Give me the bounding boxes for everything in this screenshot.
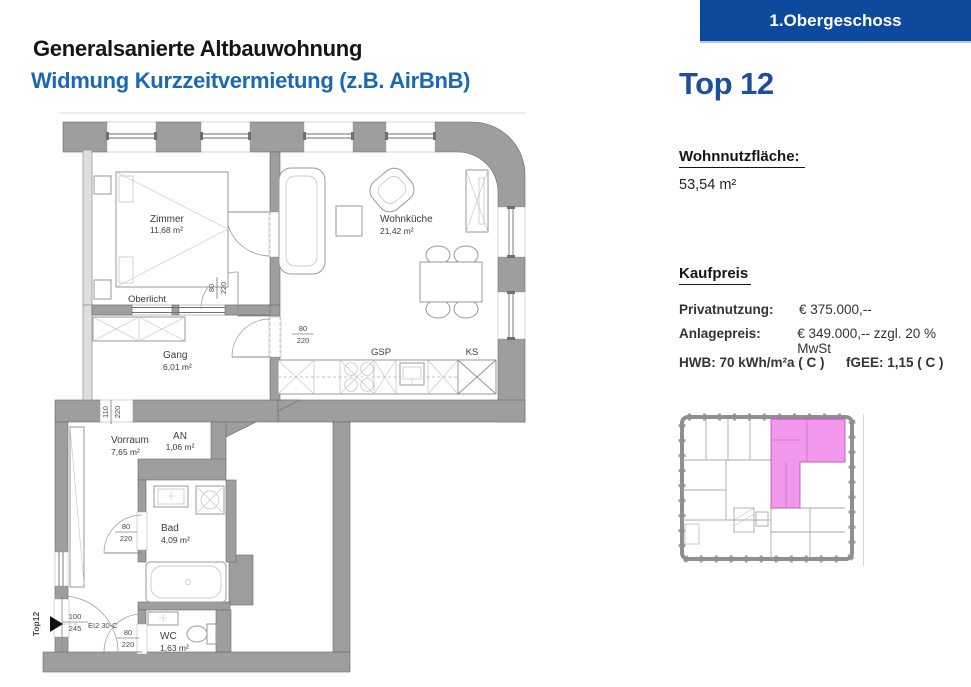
unit-name: Top 12 xyxy=(679,66,774,102)
gang-label: Gang xyxy=(163,350,187,361)
private-use-value: € 375.000,-- xyxy=(799,302,872,317)
page-subtitle: Widmung Kurzzeitvermietung (z.B. AirBnB) xyxy=(31,68,470,94)
floor-banner: 1.Obergeschoss xyxy=(700,0,971,43)
sofa xyxy=(279,168,325,274)
bathtub xyxy=(146,562,226,602)
an-right-wall xyxy=(211,422,226,460)
nightstand-2 xyxy=(94,280,111,299)
svg-text:220: 220 xyxy=(122,640,135,649)
fgee-value: fGEE: 1,15 ( C ) xyxy=(846,355,944,370)
svg-text:80: 80 xyxy=(122,522,130,531)
floor-plan: Zimmer 11,68 m² Wohnküche 21,42 m² Gang … xyxy=(20,112,545,687)
tall-cabinet xyxy=(466,170,488,232)
gang-wardrobe xyxy=(93,317,185,341)
living-area-label: Wohnnutzfläche: xyxy=(679,148,805,168)
vorraum-wardrobe xyxy=(70,427,84,587)
window-top-2 xyxy=(200,122,251,152)
price-heading: Kaufpreis xyxy=(679,265,751,285)
wohnkueche-area: 21,42 m² xyxy=(380,226,414,236)
svg-text:80: 80 xyxy=(124,628,132,637)
door-bad xyxy=(104,512,147,553)
wc-sink xyxy=(148,612,178,625)
dining-set xyxy=(420,246,482,318)
gang-area: 6,01 m² xyxy=(163,362,192,372)
window-right-2 xyxy=(498,291,525,340)
door-zimmer-niche xyxy=(226,212,281,257)
svg-text:220: 220 xyxy=(120,534,133,543)
vorraum-label: Vorraum xyxy=(111,435,149,446)
private-use-label: Privatnutzung: xyxy=(679,302,799,317)
an-label: AN xyxy=(173,431,187,442)
page-title: Generalsanierte Altbauwohnung xyxy=(33,36,362,62)
wohnkueche-label: Wohnküche xyxy=(380,214,433,225)
svg-text:Top12: Top12 xyxy=(31,612,41,637)
entry-label: Top12 xyxy=(31,612,41,637)
svg-text:220: 220 xyxy=(219,282,228,295)
price-row-private: Privatnutzung: € 375.000,-- xyxy=(679,302,872,317)
vorraum-area: 7,65 m² xyxy=(111,447,140,457)
washing-machine xyxy=(196,486,224,514)
gsp-label: GSP xyxy=(371,347,391,358)
bathroom-sink xyxy=(154,486,188,507)
svg-text:110: 110 xyxy=(101,406,110,418)
ks-label: KS xyxy=(466,347,479,358)
svg-text:100: 100 xyxy=(69,612,82,621)
zimmer-area: 11,68 m² xyxy=(150,225,183,235)
gang-left-wall xyxy=(83,305,92,400)
door-wohnkueche xyxy=(232,317,281,357)
bad-area: 4,09 m² xyxy=(161,535,190,545)
svg-text:80: 80 xyxy=(299,324,307,333)
window-top-3 xyxy=(303,122,354,152)
window-top-4 xyxy=(385,122,436,152)
site-plan xyxy=(676,412,862,564)
hwb-value: HWB: 70 kWh/m²a ( C ) xyxy=(679,355,846,370)
kitchen-counter xyxy=(278,360,496,394)
floor-banner-label: 1.Obergeschoss xyxy=(769,11,901,31)
svg-text:245: 245 xyxy=(69,624,82,633)
dim-door-bad: 80 220 xyxy=(115,522,137,543)
armchair xyxy=(365,163,419,216)
window-left-lower xyxy=(55,552,68,586)
dim-door-wc: 80 220 xyxy=(117,628,139,649)
living-area-value: 53,54 m² xyxy=(679,177,736,193)
energy-row: HWB: 70 kWh/m²a ( C ) fGEE: 1,15 ( C ) xyxy=(679,355,944,370)
nightstand-1 xyxy=(94,176,111,194)
svg-text:220: 220 xyxy=(297,336,310,345)
site-plan-separator xyxy=(863,414,864,566)
svg-text:220: 220 xyxy=(113,406,122,419)
wc-area: 1,63 m² xyxy=(160,643,189,653)
fire-door-label: EI2 30-C xyxy=(88,621,118,630)
an-area: 1,06 m² xyxy=(166,442,195,452)
bad-label: Bad xyxy=(161,523,179,534)
zimmer-label: Zimmer xyxy=(150,214,185,225)
wc-right-wall xyxy=(216,610,231,652)
window-top-1 xyxy=(106,122,157,152)
dim-door-wohnkueche: 80 220 xyxy=(292,324,314,345)
zimmer-left-wall xyxy=(83,150,92,305)
investment-value: € 349.000,-- zzgl. 20 % MwSt xyxy=(797,326,971,356)
kitchen-sink xyxy=(400,363,424,385)
price-row-investment: Anlagepreis: € 349.000,-- zzgl. 20 % MwS… xyxy=(679,326,971,356)
an-bad-wall xyxy=(138,459,226,480)
fridge-ks xyxy=(458,360,496,394)
coffee-table xyxy=(336,206,362,236)
tub-wc-wall xyxy=(138,602,230,610)
oberlicht-wall xyxy=(92,305,270,315)
investment-label: Anlagepreis: xyxy=(679,326,797,356)
bad-right-wall xyxy=(226,480,236,562)
wc-label: WC xyxy=(160,631,177,642)
window-right-1 xyxy=(498,206,525,258)
svg-text:80: 80 xyxy=(207,284,216,292)
toilet xyxy=(187,624,216,644)
oberlicht-label: Oberlicht xyxy=(128,294,166,305)
